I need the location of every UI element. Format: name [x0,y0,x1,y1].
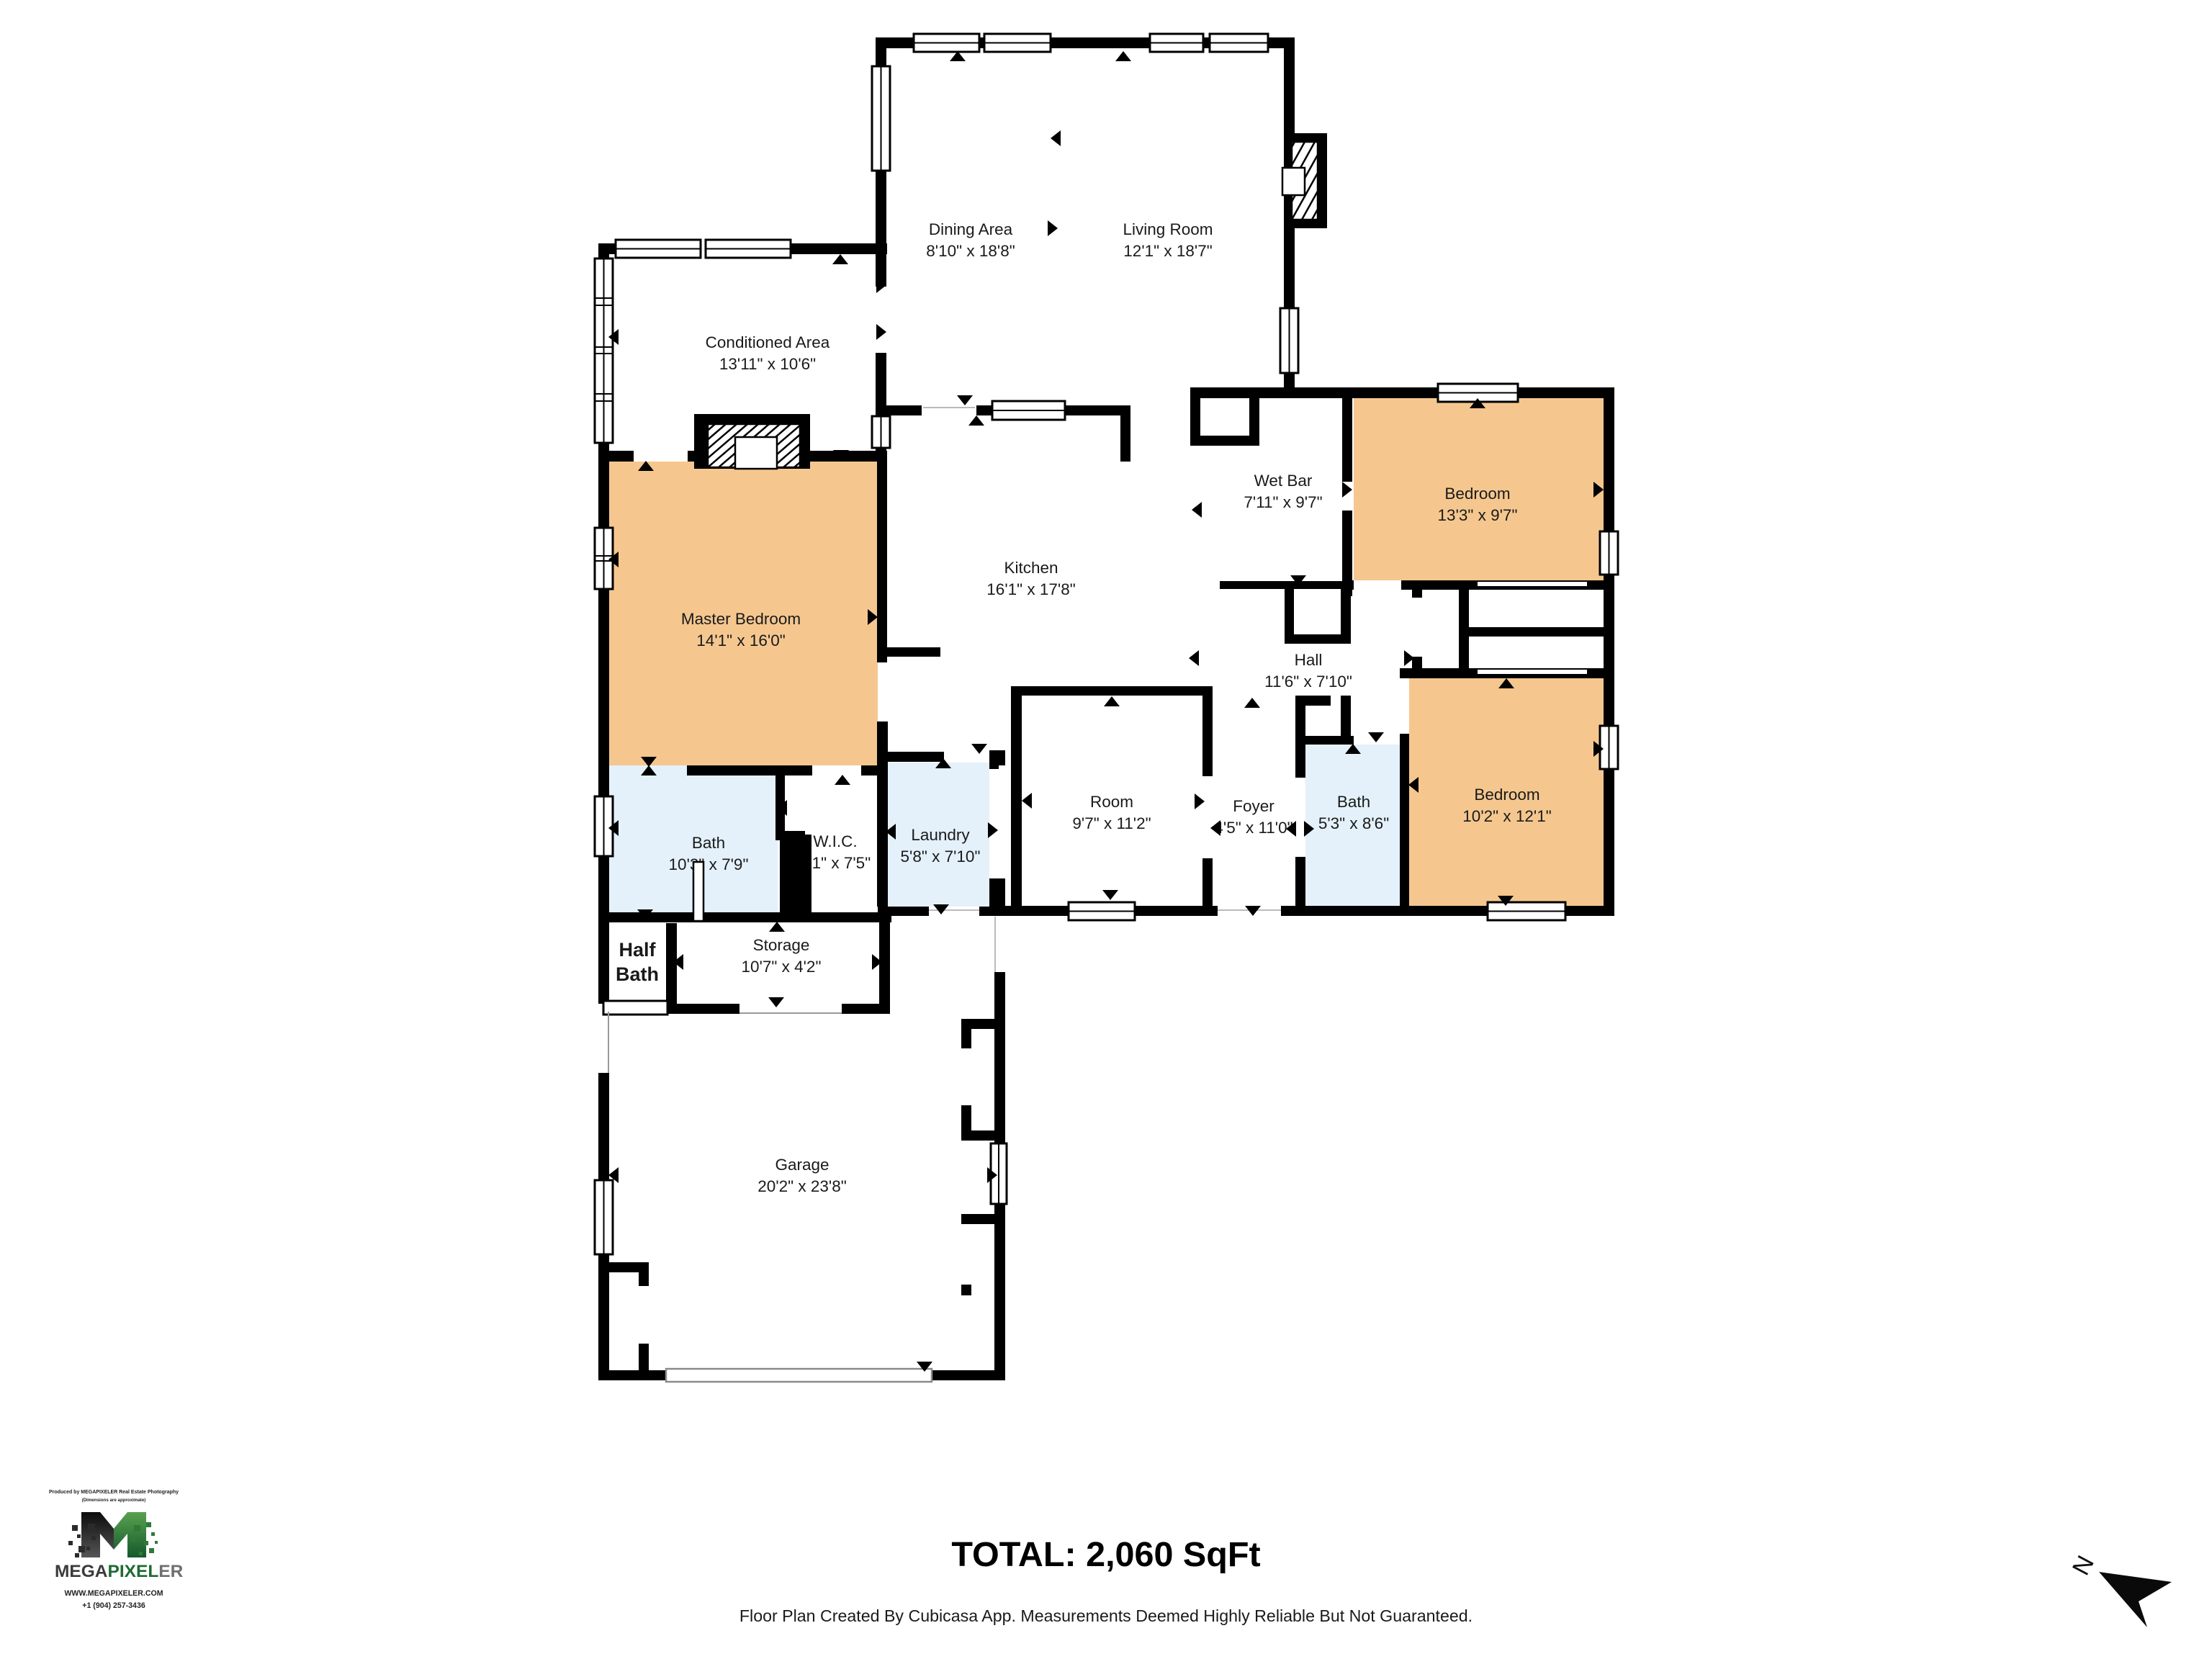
svg-text:Garage: Garage [775,1156,829,1174]
svg-text:Foyer: Foyer [1233,797,1274,815]
svg-text:Storage: Storage [753,936,810,954]
svg-text:5'8" x 7'10": 5'8" x 7'10" [901,848,981,866]
svg-text:13'3" x 9'7": 13'3" x 9'7" [1438,506,1518,524]
svg-text:10'2" x 12'1": 10'2" x 12'1" [1462,807,1551,825]
svg-text:Kitchen: Kitchen [1004,559,1058,577]
svg-text:MEGAPIXELER: MEGAPIXELER [55,1562,184,1581]
svg-text:Floor Plan Created By Cubicasa: Floor Plan Created By Cubicasa App. Meas… [739,1606,1473,1625]
svg-text:Living Room: Living Room [1123,220,1213,238]
svg-text:Half: Half [619,939,656,961]
svg-text:Laundry: Laundry [911,826,970,844]
svg-text:4'5" x 11'0": 4'5" x 11'0" [1214,819,1292,837]
svg-text:9'7" x 11'2": 9'7" x 11'2" [1072,814,1151,832]
svg-text:10'7" x 4'2": 10'7" x 4'2" [742,958,822,976]
svg-text:W.I.C.: W.I.C. [813,832,857,850]
svg-text:12'1" x 18'7": 12'1" x 18'7" [1123,242,1212,260]
svg-text:Conditioned Area: Conditioned Area [706,333,830,351]
svg-text:20'2" x 23'8": 20'2" x 23'8" [757,1177,846,1195]
svg-text:Produced by MEGAPIXELER Real E: Produced by MEGAPIXELER Real Estate Phot… [49,1490,179,1495]
svg-text:Bath: Bath [1337,793,1370,811]
svg-text:TOTAL: 2,060 SqFt: TOTAL: 2,060 SqFt [951,1535,1260,1574]
svg-text:Master Bedroom: Master Bedroom [681,610,801,628]
svg-text:Wet Bar: Wet Bar [1254,472,1313,490]
svg-text:8'10" x 18'8": 8'10" x 18'8" [926,242,1015,260]
svg-text:Room: Room [1090,793,1133,811]
svg-text:Dining Area: Dining Area [929,220,1013,238]
svg-text:16'1" x 17'8": 16'1" x 17'8" [986,580,1075,598]
svg-text:Hall: Hall [1295,651,1323,669]
svg-text:13'11" x 10'6": 13'11" x 10'6" [719,355,816,373]
svg-text:Bath: Bath [616,963,659,985]
svg-text:(Dimensions are approximate): (Dimensions are approximate) [82,1498,146,1503]
svg-text:Bedroom: Bedroom [1474,786,1539,804]
svg-text:14'1" x 16'0": 14'1" x 16'0" [696,631,785,649]
svg-text:10'3" x 7'9": 10'3" x 7'9" [669,855,749,873]
svg-text:+1 (904) 257-3436: +1 (904) 257-3436 [82,1601,145,1610]
svg-text:11'6" x 7'10": 11'6" x 7'10" [1264,673,1352,691]
svg-text:Bedroom: Bedroom [1444,485,1510,503]
svg-text:5'3" x 8'6": 5'3" x 8'6" [1318,814,1389,832]
svg-text:Bath: Bath [692,834,725,852]
svg-text:WWW.MEGAPIXELER.COM: WWW.MEGAPIXELER.COM [64,1589,163,1598]
svg-text:7'11" x 9'7": 7'11" x 9'7" [1244,493,1322,511]
